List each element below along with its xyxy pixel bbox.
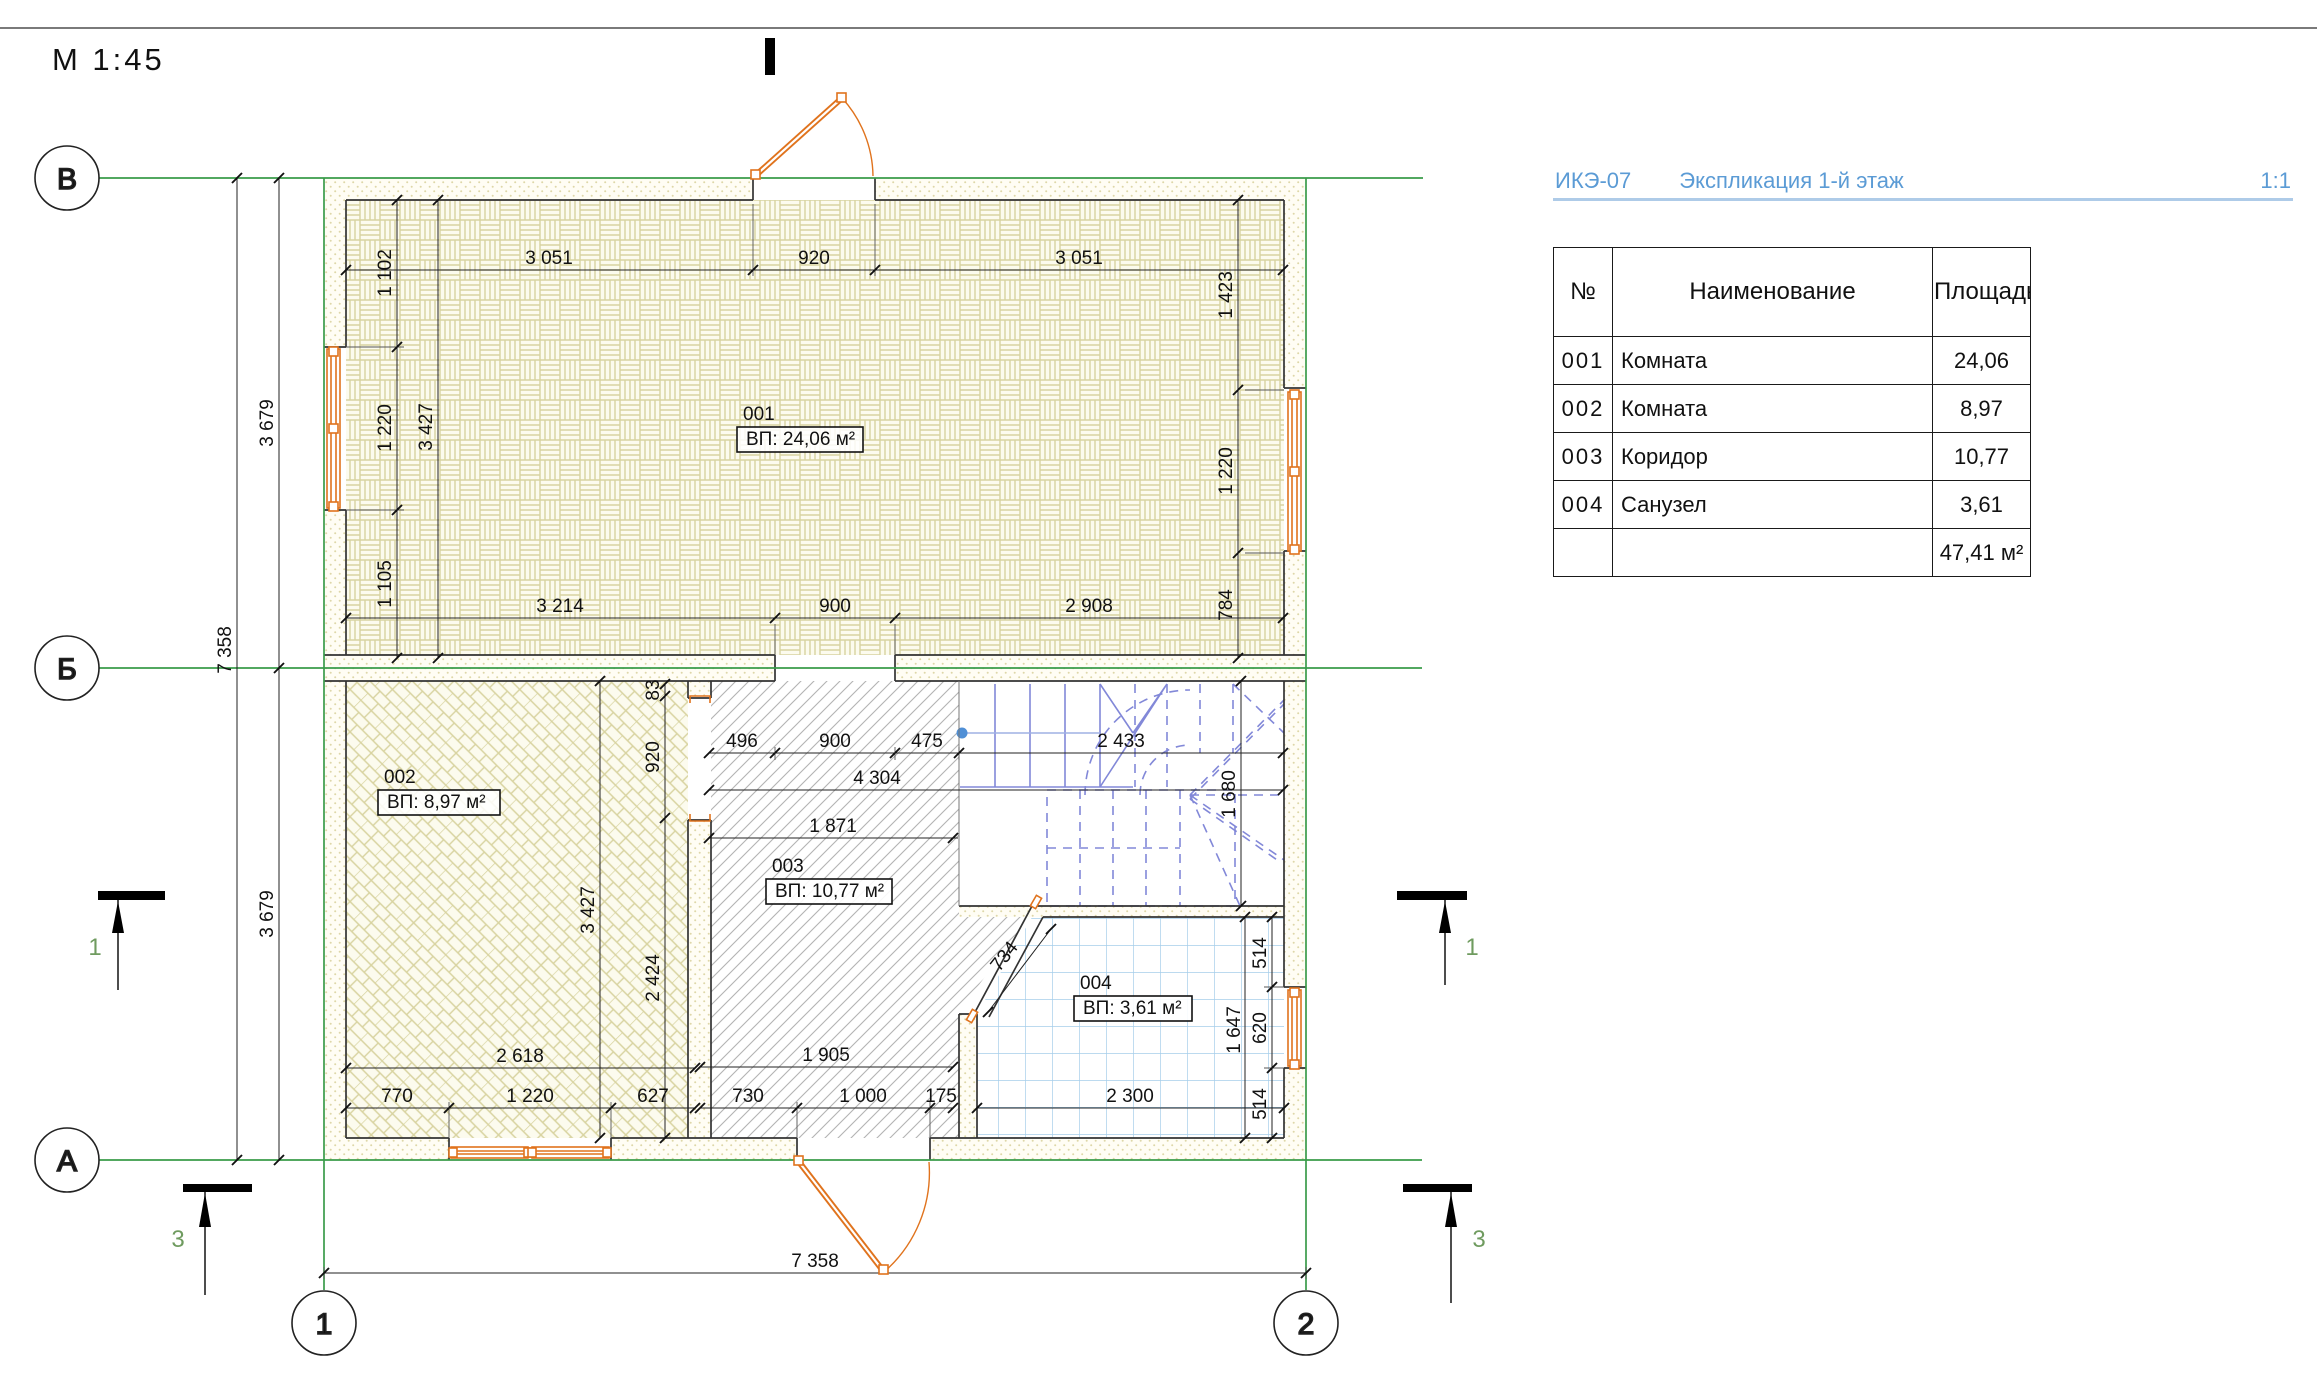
dimension-label: 514 xyxy=(1250,937,1271,969)
svg-text:002: 002 xyxy=(384,767,416,788)
dimension-label: 496 xyxy=(726,731,758,752)
stair-walkline-dot xyxy=(957,728,968,739)
svg-text:Б: Б xyxy=(57,653,77,686)
room-number-cell: 002 xyxy=(1554,385,1613,433)
axis-bubble-a: А xyxy=(35,1128,99,1192)
dimension-label: 3 427 xyxy=(578,886,599,934)
dimension-label: 1 871 xyxy=(809,816,857,837)
svg-text:001: 001 xyxy=(743,404,775,425)
door-002-003-jambs xyxy=(690,696,710,821)
table-row: 003Коридор10,77 xyxy=(1554,433,2031,481)
dimension-label: 2 433 xyxy=(1097,731,1145,752)
room-number-cell: 004 xyxy=(1554,481,1613,529)
dimension-label: 1 105 xyxy=(375,560,396,608)
svg-text:1: 1 xyxy=(316,1308,333,1341)
room-name-cell: Коридор xyxy=(1613,433,1933,481)
spec-table-header-row: № Наименование Площадь xyxy=(1554,248,2031,337)
room-number-cell: 001 xyxy=(1554,337,1613,385)
dimension-label: 2 908 xyxy=(1065,596,1113,617)
dimension-label: 1 102 xyxy=(375,249,396,297)
svg-text:3: 3 xyxy=(171,1226,184,1253)
room-area-cell: 10,77 xyxy=(1933,433,2031,481)
room-002-floor xyxy=(346,681,688,1138)
svg-text:1: 1 xyxy=(88,934,101,961)
spec-col-number: № xyxy=(1554,248,1613,337)
spec-total-row: 47,41 м² xyxy=(1554,529,2031,577)
dimension-label: 1 647 xyxy=(1224,1006,1245,1054)
dimension-label: 730 xyxy=(732,1086,764,1107)
svg-text:ВП: 8,97 м²: ВП: 8,97 м² xyxy=(387,792,486,813)
axis-bubble-1: 1 xyxy=(292,1291,356,1355)
dimension-label: 3 679 xyxy=(257,890,278,938)
dimension-label: 83 xyxy=(643,679,664,700)
spec-total-area: 47,41 м² xyxy=(1933,529,2031,577)
axis-bubble-b: Б xyxy=(35,636,99,700)
section-mark-3-left: 3 xyxy=(171,1184,252,1295)
axis-bubble-2: 2 xyxy=(1274,1291,1338,1355)
svg-text:2: 2 xyxy=(1298,1308,1315,1341)
spec-title: Экспликация 1-й этаж xyxy=(1553,168,2030,194)
dimension-label: 784 xyxy=(1216,589,1237,621)
dimension-label: 4 304 xyxy=(853,768,901,789)
dimension-label: 1 220 xyxy=(506,1086,554,1107)
svg-text:А: А xyxy=(57,1145,77,1178)
dimension-label: 475 xyxy=(911,731,943,752)
spec-scale: 1:1 xyxy=(2260,168,2291,194)
dimension-label: 3 214 xyxy=(536,596,584,617)
svg-text:ВП: 3,61 м²: ВП: 3,61 м² xyxy=(1083,998,1182,1019)
spec-table: № Наименование Площадь 001Комната24,0600… xyxy=(1553,247,2031,577)
svg-text:ВП: 10,77 м²: ВП: 10,77 м² xyxy=(775,881,884,902)
room-number-cell: 003 xyxy=(1554,433,1613,481)
dimension-label: 3 051 xyxy=(1055,248,1103,269)
svg-text:ВП: 24,06 м²: ВП: 24,06 м² xyxy=(746,429,855,450)
spec-header: ИКЭ-07 Экспликация 1-й этаж 1:1 xyxy=(1553,166,2293,201)
drawing-sheet: М 1:45 xyxy=(0,0,2317,1377)
specification-panel: ИКЭ-07 Экспликация 1-й этаж 1:1 № Наимен… xyxy=(1553,166,2293,577)
dimension-label: 770 xyxy=(381,1086,413,1107)
svg-text:3: 3 xyxy=(1472,1226,1485,1253)
svg-text:003: 003 xyxy=(772,856,804,877)
dimension-label: 920 xyxy=(643,741,664,773)
spec-col-name: Наименование xyxy=(1613,248,1933,337)
room-area-cell: 3,61 xyxy=(1933,481,2031,529)
dimension-label: 920 xyxy=(798,248,830,269)
room-area-cell: 8,97 xyxy=(1933,385,2031,433)
table-row: 004Санузел3,61 xyxy=(1554,481,2031,529)
axis-bubble-v: В xyxy=(35,146,99,210)
room-name-cell: Санузел xyxy=(1613,481,1933,529)
dimension-label: 7 358 xyxy=(215,626,236,674)
dimension-label: 900 xyxy=(819,596,851,617)
room-name-cell: Комната xyxy=(1613,337,1933,385)
dimension-label: 1 220 xyxy=(1216,447,1237,495)
section-I-mark xyxy=(765,38,775,75)
section-mark-3-right: 3 xyxy=(1403,1184,1486,1303)
dimension-label: 1 680 xyxy=(1219,770,1240,818)
spec-table-body: 001Комната24,06002Комната8,97003Коридор1… xyxy=(1554,337,2031,529)
room-name-cell: Комната xyxy=(1613,385,1933,433)
dimension-label: 2 424 xyxy=(643,954,664,1002)
svg-text:1: 1 xyxy=(1465,934,1478,961)
dimension-label: 627 xyxy=(637,1086,669,1107)
dimension-label: 514 xyxy=(1250,1088,1271,1120)
svg-text:004: 004 xyxy=(1080,973,1112,994)
dimension-label: 900 xyxy=(819,731,851,752)
dimension-label: 1 423 xyxy=(1216,271,1237,319)
dimension-label: 620 xyxy=(1250,1012,1271,1044)
svg-text:В: В xyxy=(57,163,77,196)
dimension-label: 7 358 xyxy=(791,1251,839,1272)
dimension-label: 3 679 xyxy=(257,399,278,447)
dimension-label: 3 051 xyxy=(525,248,573,269)
table-row: 001Комната24,06 xyxy=(1554,337,2031,385)
dimension-label: 3 427 xyxy=(416,403,437,451)
room-area-cell: 24,06 xyxy=(1933,337,2031,385)
spec-col-area: Площадь xyxy=(1933,248,2031,337)
door-top xyxy=(751,93,873,179)
dimension-label: 2 300 xyxy=(1106,1086,1154,1107)
section-mark-1-left: 1 xyxy=(88,891,165,990)
dimension-label: 2 618 xyxy=(496,1046,544,1067)
dimension-label: 1 220 xyxy=(375,404,396,452)
section-mark-1-right: 1 xyxy=(1397,891,1479,985)
dimension-label: 1 905 xyxy=(802,1045,850,1066)
dimension-label: 1 000 xyxy=(839,1086,887,1107)
dimension-label: 175 xyxy=(925,1086,957,1107)
table-row: 002Комната8,97 xyxy=(1554,385,2031,433)
